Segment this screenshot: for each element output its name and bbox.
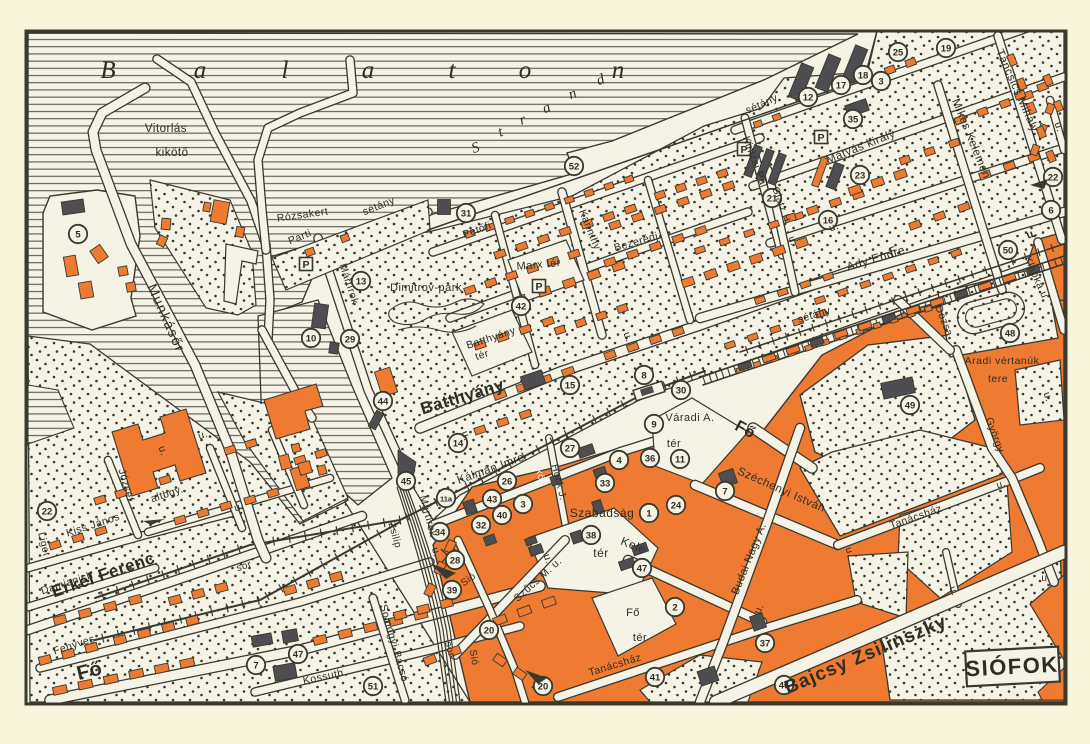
svg-text:40: 40 (497, 510, 508, 521)
svg-text:29: 29 (345, 334, 356, 345)
svg-text:3: 3 (878, 76, 883, 87)
svg-text:24: 24 (671, 500, 682, 511)
svg-text:Váradi A.: Váradi A. (665, 412, 714, 424)
svg-text:27: 27 (565, 443, 576, 454)
svg-text:7: 7 (722, 486, 727, 497)
svg-text:8: 8 (641, 370, 646, 381)
svg-text:41: 41 (650, 672, 661, 683)
svg-text:10: 10 (306, 333, 317, 344)
svg-text:50: 50 (1003, 245, 1014, 256)
svg-text:P: P (817, 132, 824, 144)
svg-text:44: 44 (378, 396, 389, 407)
svg-text:36: 36 (645, 453, 656, 464)
svg-text:17: 17 (836, 80, 847, 91)
svg-text:13: 13 (356, 276, 367, 287)
svg-text:u.: u. (1041, 573, 1050, 584)
svg-text:o: o (519, 57, 532, 84)
svg-text:tér: tér (667, 438, 681, 450)
svg-text:n: n (612, 57, 625, 84)
svg-text:39: 39 (447, 585, 458, 596)
svg-text:P: P (302, 259, 309, 271)
svg-text:tér: tér (633, 632, 647, 644)
svg-text:5: 5 (75, 229, 81, 240)
svg-text:15: 15 (565, 380, 576, 391)
svg-text:t: t (449, 57, 457, 84)
svg-text:11a: 11a (440, 494, 453, 503)
svg-text:25: 25 (893, 47, 904, 58)
svg-text:7: 7 (253, 660, 258, 671)
svg-text:Aradi vértanúk: Aradi vértanúk (965, 355, 1040, 367)
svg-text:22: 22 (42, 506, 53, 517)
svg-text:12: 12 (803, 92, 814, 103)
svg-text:1: 1 (646, 508, 652, 519)
svg-text:Szabadság: Szabadság (570, 506, 635, 520)
svg-text:Dimitrov-park: Dimitrov-park (390, 282, 462, 294)
svg-text:Fő: Fő (626, 607, 640, 619)
svg-text:6: 6 (1048, 205, 1053, 216)
svg-text:11: 11 (675, 454, 686, 465)
svg-text:38: 38 (586, 530, 597, 541)
svg-text:47: 47 (293, 649, 304, 660)
svg-text:SIÓFOK: SIÓFOK (965, 652, 1060, 682)
svg-text:45: 45 (401, 476, 412, 487)
svg-text:37: 37 (760, 638, 771, 649)
svg-text:19: 19 (941, 43, 952, 54)
svg-text:51: 51 (368, 681, 379, 692)
svg-text:52: 52 (569, 161, 580, 172)
svg-text:31: 31 (461, 208, 472, 219)
svg-text:a: a (194, 57, 207, 84)
svg-text:32: 32 (476, 520, 487, 531)
svg-text:26: 26 (502, 476, 513, 487)
svg-text:B: B (100, 57, 115, 84)
svg-text:l: l (282, 57, 289, 84)
svg-text:22: 22 (1048, 172, 1059, 183)
svg-text:kikötő: kikötő (155, 147, 188, 159)
svg-text:47: 47 (637, 563, 648, 574)
svg-text:23: 23 (855, 170, 866, 181)
svg-text:18: 18 (858, 70, 869, 81)
svg-text:35: 35 (848, 114, 859, 125)
svg-text:48: 48 (1005, 328, 1016, 339)
svg-text:49: 49 (905, 400, 916, 411)
svg-text:2: 2 (672, 602, 677, 613)
svg-text:tér: tér (593, 546, 609, 560)
svg-text:43: 43 (487, 494, 498, 505)
svg-text:28: 28 (450, 555, 461, 566)
svg-text:tere: tere (988, 373, 1008, 385)
svg-text:Vitorlás: Vitorlás (145, 123, 187, 135)
svg-text:P: P (535, 281, 542, 293)
svg-text:33: 33 (600, 478, 611, 489)
svg-text:20: 20 (484, 625, 495, 636)
svg-text:9: 9 (651, 419, 656, 430)
svg-text:30: 30 (676, 385, 687, 396)
svg-text:3: 3 (520, 499, 525, 510)
svg-text:a: a (362, 57, 375, 84)
svg-text:42: 42 (516, 301, 527, 312)
svg-text:4: 4 (616, 455, 622, 466)
